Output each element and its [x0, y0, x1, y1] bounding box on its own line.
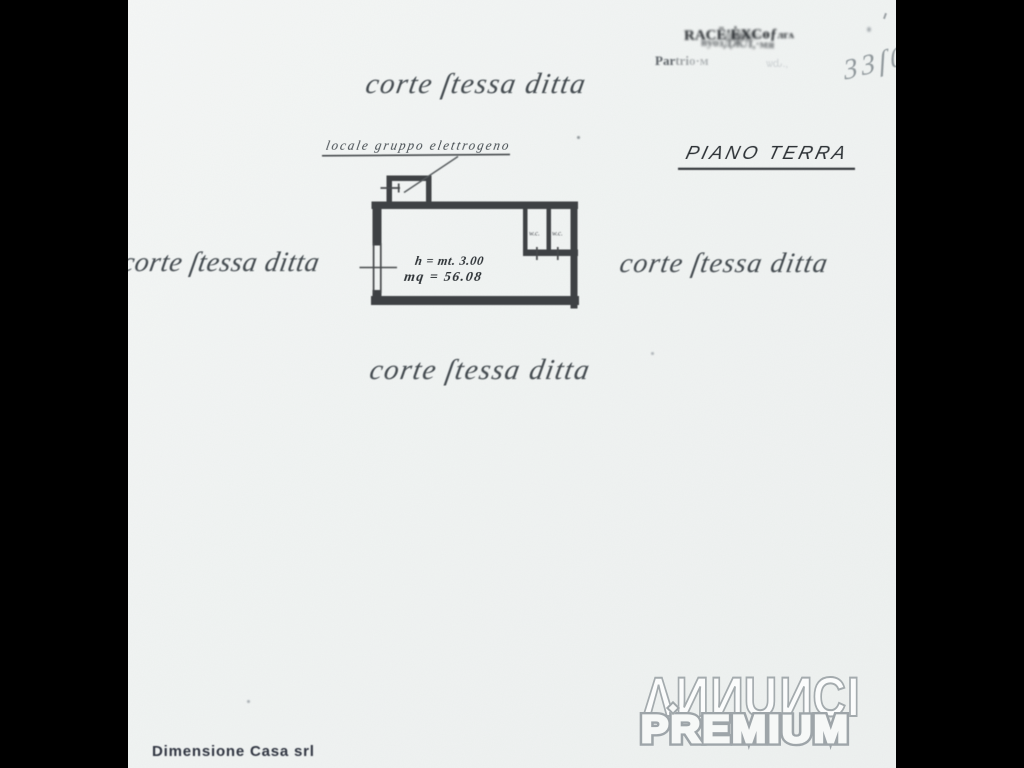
svg-text:w.c.: w.c. — [552, 230, 563, 238]
svg-text:w.c.: w.c. — [529, 230, 540, 238]
